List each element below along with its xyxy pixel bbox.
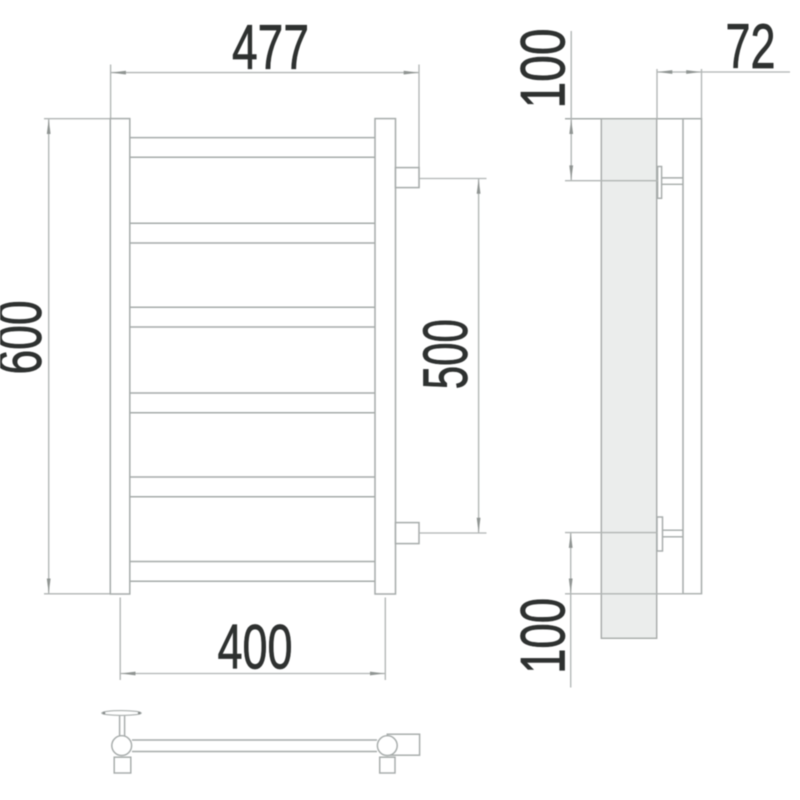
svg-text:100: 100: [508, 598, 578, 674]
svg-text:100: 100: [508, 29, 578, 109]
svg-text:400: 400: [218, 612, 293, 682]
svg-text:477: 477: [232, 13, 309, 83]
svg-text:500: 500: [411, 319, 481, 389]
svg-text:72: 72: [726, 12, 776, 82]
svg-text:600: 600: [0, 301, 55, 375]
